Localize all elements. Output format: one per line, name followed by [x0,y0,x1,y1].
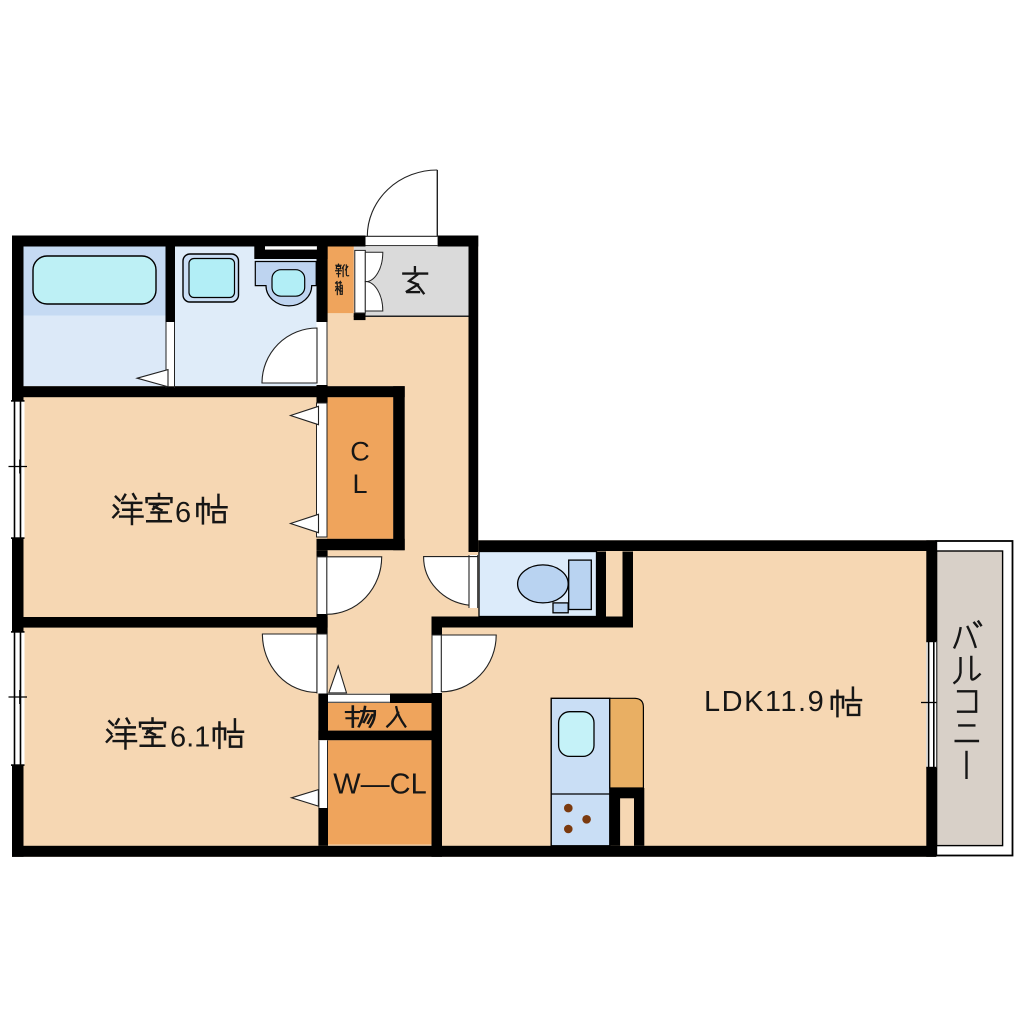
svg-text:6.1: 6.1 [170,722,210,754]
svg-text:L: L [352,469,367,499]
svg-text:6: 6 [175,497,191,529]
svg-text:LDK11.9: LDK11.9 [704,686,825,718]
svg-text:W—CL: W—CL [333,769,426,801]
svg-text:C: C [350,436,370,466]
